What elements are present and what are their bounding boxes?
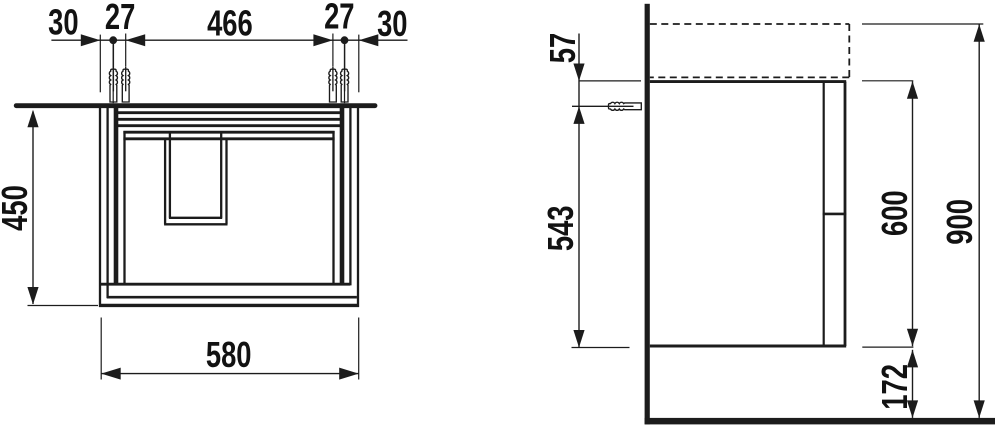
svg-text:27: 27 xyxy=(105,0,135,37)
svg-text:30: 30 xyxy=(377,3,407,44)
svg-text:466: 466 xyxy=(207,3,253,44)
svg-text:543: 543 xyxy=(541,205,582,251)
svg-text:30: 30 xyxy=(48,2,78,43)
svg-text:450: 450 xyxy=(0,185,35,231)
svg-text:57: 57 xyxy=(543,33,584,63)
svg-text:27: 27 xyxy=(324,0,354,36)
svg-text:900: 900 xyxy=(939,199,980,245)
svg-text:580: 580 xyxy=(206,335,252,376)
svg-text:600: 600 xyxy=(874,190,915,236)
svg-text:172: 172 xyxy=(874,364,915,410)
